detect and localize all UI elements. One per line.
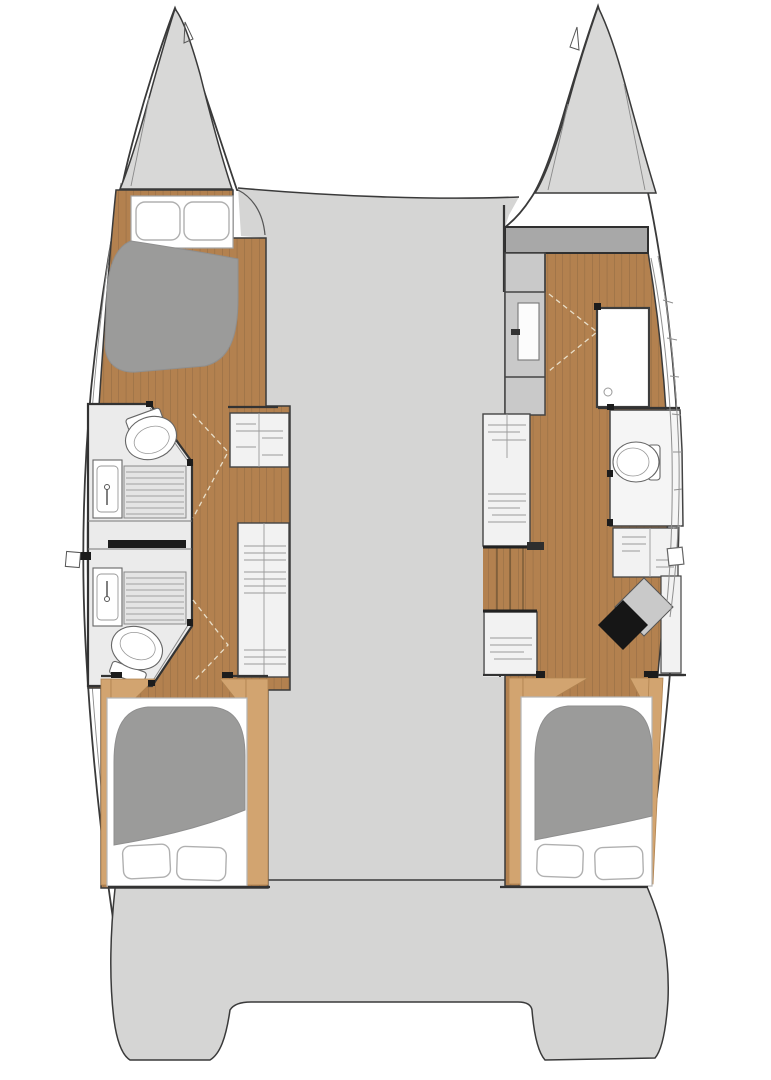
port-forward-mattress: [105, 241, 238, 372]
catamaran-floorplan: [0, 0, 771, 1080]
door-post: [644, 671, 653, 677]
port-aft-cabin: [101, 676, 268, 886]
door-post: [80, 552, 91, 560]
door-post: [607, 404, 614, 410]
floorplan-svg: [0, 0, 771, 1080]
door-post: [148, 680, 155, 686]
starboard-cabinet-column: [661, 576, 681, 673]
door-post: [607, 519, 613, 526]
port-forward-pillow-right: [184, 202, 229, 240]
bathroom-sliding-door: [108, 540, 186, 548]
door-post: [146, 401, 153, 407]
door-post: [536, 671, 545, 678]
port-forward-pillow-left: [136, 202, 180, 240]
port-bathrooms: [88, 404, 192, 688]
stair-handrail: [527, 542, 544, 550]
port-aft-pillow-left: [122, 844, 171, 879]
starboard-aft-pillow-left: [536, 844, 583, 878]
hanging-locker-door: [518, 303, 539, 360]
starboard-aft-cabin: [483, 675, 684, 886]
starboard-cabinet-forward: [483, 414, 530, 546]
starboard-aft-pillow-right: [594, 846, 643, 880]
door-post: [187, 459, 193, 466]
hull-side-hatch: [667, 547, 684, 565]
port-hull-side-fitting: [65, 551, 80, 567]
port-cabinet-forward: [230, 413, 289, 467]
door-post: [607, 470, 613, 477]
starboard-aft-duvet: [535, 706, 652, 840]
starboard-shower-cubicle: [597, 308, 649, 407]
starboard-cabinet-aft: [484, 612, 537, 675]
port-forward-shower: [124, 466, 186, 518]
door-post: [111, 672, 122, 678]
door-post: [594, 303, 601, 310]
door-post: [187, 619, 193, 626]
door-post: [222, 672, 233, 678]
port-aft-pillow-right: [176, 846, 226, 881]
starboard-forward-bulkhead: [505, 227, 648, 253]
locker-door-handle: [511, 329, 520, 335]
port-aft-shower: [124, 572, 186, 624]
side-panel: [246, 679, 268, 885]
